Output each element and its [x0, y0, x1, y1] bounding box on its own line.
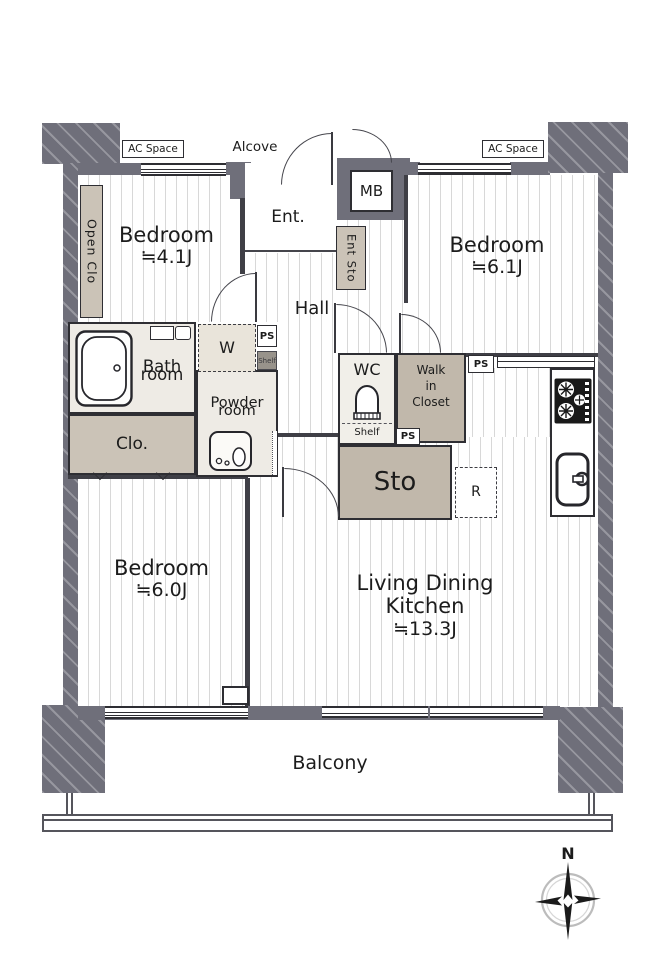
ac-space-label-right: AC Space — [482, 140, 544, 158]
entrance-step-line — [245, 250, 337, 252]
pipe-space-1: PS — [257, 325, 277, 347]
open-closet-label: Open Clo — [80, 185, 103, 318]
bathtub-icon — [75, 330, 133, 408]
powder-pocket-door — [272, 431, 278, 475]
balcony-label: Balcony — [250, 750, 410, 778]
washer-space-label: W — [198, 324, 256, 372]
shelf-box: Shelf — [257, 351, 277, 370]
shelf-box-label: Shelf — [258, 357, 276, 365]
balcony-post-left — [66, 793, 73, 816]
compass-icon — [533, 860, 603, 950]
window-bedroom-nw — [141, 163, 226, 176]
wall-bed-nw-hall — [240, 198, 245, 274]
hall-label: Hall — [282, 296, 342, 322]
partition-end-post — [222, 686, 249, 705]
pillar-bottom-right — [558, 707, 623, 793]
stove-icon — [554, 378, 592, 424]
wc-room: WC Shelf — [338, 353, 396, 445]
wc-shelf-line — [342, 423, 392, 424]
bathroom-label: Bath room — [128, 344, 196, 390]
bedroom-sw-label: Bedroom ≒6.0J — [78, 548, 245, 610]
pipe-space-2: PS — [468, 355, 494, 373]
meter-box-label: MB — [350, 170, 393, 212]
ac-space-text: AC Space — [128, 143, 178, 155]
storage-label: Sto — [338, 445, 452, 520]
kitchen-hanging-cabinet — [497, 356, 595, 368]
sink-icon — [208, 428, 254, 474]
wall-top-right — [510, 162, 550, 175]
refrigerator-label: R — [455, 467, 497, 518]
window-bedroom-sw — [105, 706, 248, 719]
ac-space-label-left: AC Space — [122, 140, 184, 158]
pillar-top-right — [548, 122, 628, 173]
bedroom-nw-label: Bedroom ≒4.1J — [103, 215, 230, 277]
window-bedroom-ne — [418, 163, 511, 175]
kitchen-counter — [550, 368, 595, 517]
alcove-label: Alcove — [222, 139, 288, 157]
powder-room-label: Powder room — [198, 384, 276, 422]
bedroom-ne-label: Bedroom ≒6.1J — [408, 225, 586, 287]
partition-bed-sw-ldk — [245, 478, 250, 706]
wall-right — [598, 173, 613, 710]
floor-hall-lower — [278, 322, 340, 437]
window-ldk-left — [322, 706, 428, 718]
wall-hall-ldk — [278, 433, 338, 437]
entrance-storage-label: Ent Sto — [336, 226, 366, 290]
floor-plan: MB AC Space AC Space Alcove Open Clo Ent… — [0, 0, 672, 960]
entrance-label: Ent. — [262, 206, 314, 230]
wc-shelf-label: Shelf — [340, 425, 394, 441]
bath-faucet — [175, 326, 191, 340]
pillar-top-left — [42, 123, 120, 164]
ldk-label: Living Dining Kitchen ≒13.3J — [300, 560, 550, 652]
door-arc-entrance — [281, 133, 332, 185]
kitchen-sink-icon — [555, 452, 591, 508]
ac-space-text: AC Space — [488, 143, 538, 155]
pipe-space-3: PS — [396, 428, 420, 445]
closet-label: Clo. — [68, 414, 196, 475]
bath-counter — [150, 326, 174, 340]
wc-label: WC — [340, 359, 394, 381]
balcony-post-right — [588, 793, 595, 816]
toilet-icon — [351, 384, 383, 422]
walk-in-closet-label: Walk in Closet — [396, 364, 466, 418]
window-ldk-right — [430, 706, 543, 718]
door-arc-meter-box — [352, 129, 392, 163]
balcony-railing — [42, 814, 613, 832]
